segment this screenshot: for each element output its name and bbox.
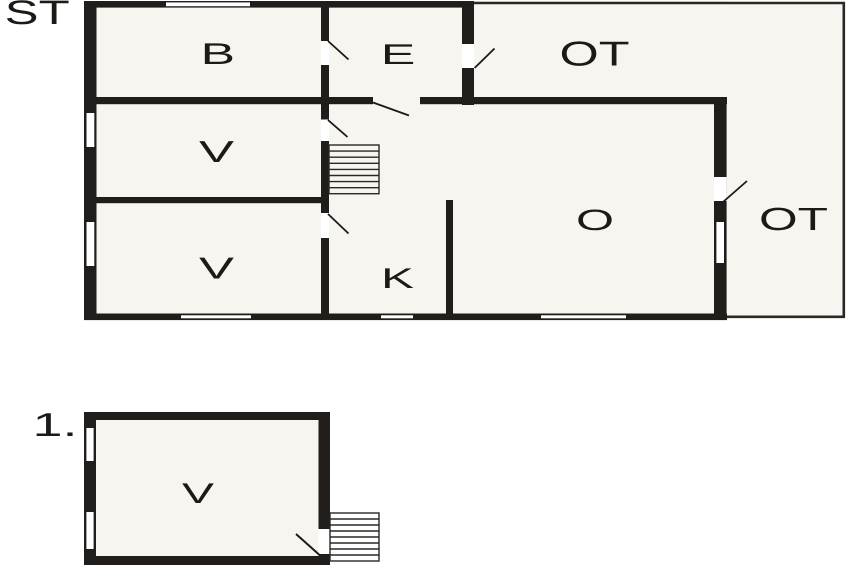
svg-text:V: V (199, 252, 235, 286)
svg-text:1.: 1. (33, 406, 78, 443)
svg-text:K: K (381, 263, 414, 295)
svg-text:B: B (201, 38, 235, 71)
svg-text:V: V (199, 135, 235, 169)
svg-text:OT: OT (560, 36, 630, 74)
svg-text:ST: ST (5, 0, 70, 32)
svg-text:V: V (182, 478, 214, 510)
svg-text:E: E (381, 39, 416, 71)
svg-text:O: O (576, 204, 614, 237)
svg-text:OT: OT (759, 201, 828, 237)
